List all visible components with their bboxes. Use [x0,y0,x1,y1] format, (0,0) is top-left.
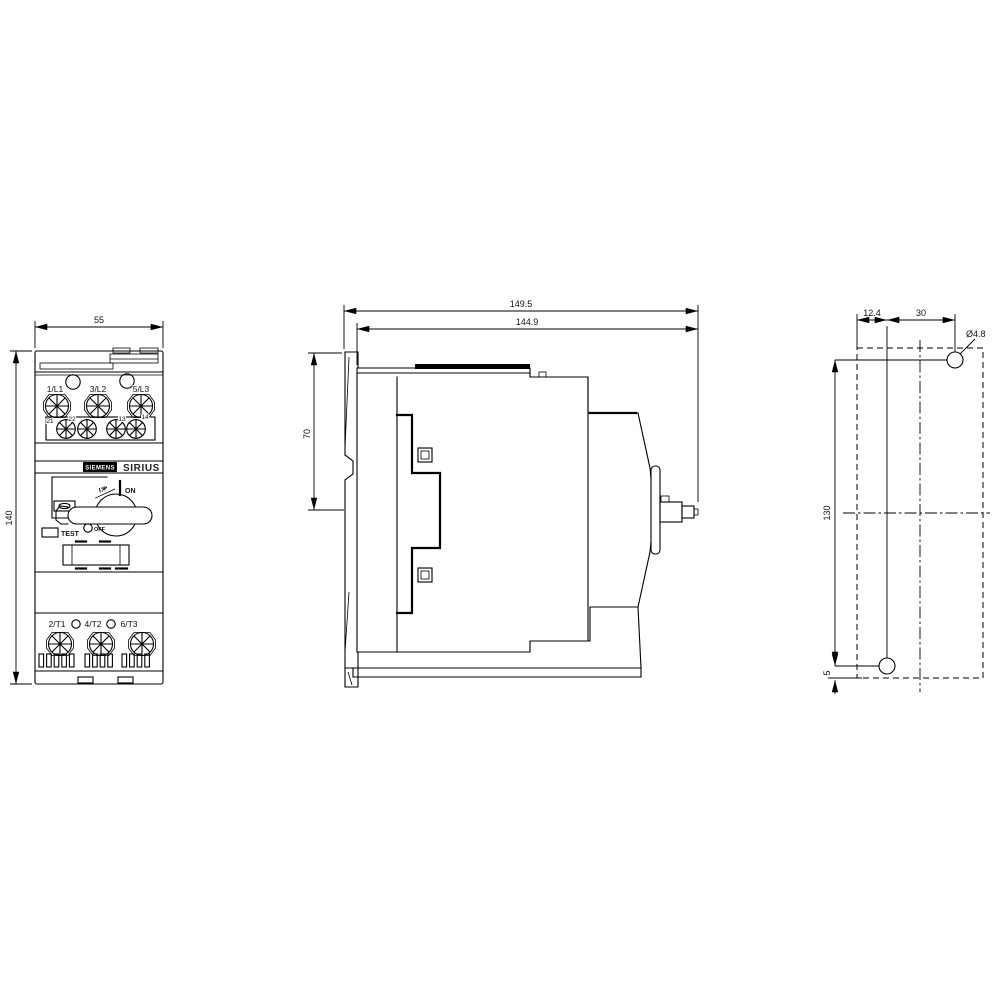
test-label: TEST [61,531,80,538]
terminal-label-2T1: 2/T1 [48,619,65,629]
din-rail-section [415,364,530,369]
terminal-label-4T2: 4/T2 [84,619,101,629]
housing-step-contour [397,415,440,613]
depth-total-value: 149.5 [510,299,533,309]
on-label: ON [125,488,136,495]
front-height-dimension: 140 [4,351,32,684]
terminal-label-5L3: 5/L3 [133,384,150,394]
drill-height-dimension: 130 [822,360,835,666]
front-brand-band: SIEMENS SIRIUS [35,461,163,474]
side-upper-depth-dimension: 70 [302,353,344,510]
front-control-area: I≫ ON OFF TEST [35,477,163,572]
hole-span-y-value: 130 [822,505,832,520]
series-label: SIRIUS [123,463,160,474]
front-width-value: 55 [94,315,104,325]
front-load-terminals: 2/T1 4/T2 6/T3 [35,613,163,656]
hole-dia-value: Ø4.8 [966,329,986,339]
mount-hole-top-left [66,375,80,389]
front-view: 55 140 1/L1 3/L2 [4,315,163,684]
nameplate [63,542,129,569]
svg-text:I≫: I≫ [98,484,110,494]
test-button[interactable] [42,528,58,537]
side-profile-outline [345,352,698,687]
terminal-screw-2T1 [47,633,74,656]
terminal-screw-1L1 [44,395,71,418]
upper-depth-value: 70 [302,429,312,439]
front-aux-terminal-strip: 21 22 13 14 [35,414,163,443]
aux-screw-14 [127,420,146,439]
terminal-screw-3L2 [85,395,112,418]
depth-body-value: 144.9 [516,317,539,327]
offset-x-value: 12.4 [863,308,881,318]
dial-marking: I≫ [92,482,115,499]
mount-hole-bottom-1 [72,620,80,628]
dimension-drawing: 55 140 1/L1 3/L2 [0,0,1000,1000]
aux-label-22: 22 [68,416,76,423]
terminal-label-1L1: 1/L1 [47,384,64,394]
din-notch [345,455,353,480]
off-label: OFF [94,527,106,533]
aux-label-14: 14 [141,414,149,421]
terminal-screw-6T3 [129,633,156,656]
terminal-screw-4T2 [88,633,115,656]
front-width-dimension: 55 [35,315,163,348]
terminal-label-3L2: 3/L2 [90,384,107,394]
side-screw-port-lower [418,568,432,582]
rotary-lever[interactable] [68,507,152,524]
din-clip-tab-1 [78,677,93,683]
aux-screw-22 [78,420,97,439]
aux-label-13: 13 [118,416,126,423]
hole-diameter-callout: Ø4.8 [960,329,986,354]
front-height-value: 140 [4,510,14,525]
mount-hole-bottom-2 [107,620,115,628]
mounting-hole-top [947,352,963,368]
side-knob-shaft [651,466,698,554]
drill-plan-view: Ø4.8 12.4 30 130 5 [822,308,990,694]
side-bottom-cap [345,607,641,687]
drill-bottom-offset-dimension: 5 [822,650,862,694]
front-line-terminals: 1/L1 3/L2 5/L3 [44,374,155,418]
brand-label: SIEMENS [85,466,115,472]
off-position-mark [84,524,92,532]
mounting-hole-bottom [879,658,895,674]
side-screw-port-upper [418,448,432,462]
drill-top-dimensions: 12.4 30 [857,308,955,320]
front-vent-slots [35,654,163,683]
drawing-svg: 55 140 1/L1 3/L2 [0,0,1000,1000]
terminal-label-6T3: 6/T3 [120,619,137,629]
din-clip-tab-2 [118,677,133,683]
bottom-offset-value: 5 [822,670,832,675]
side-view: 149.5 144.9 70 [302,299,698,687]
hole-span-x-value: 30 [916,308,926,318]
aux-label-21: 21 [46,418,54,425]
